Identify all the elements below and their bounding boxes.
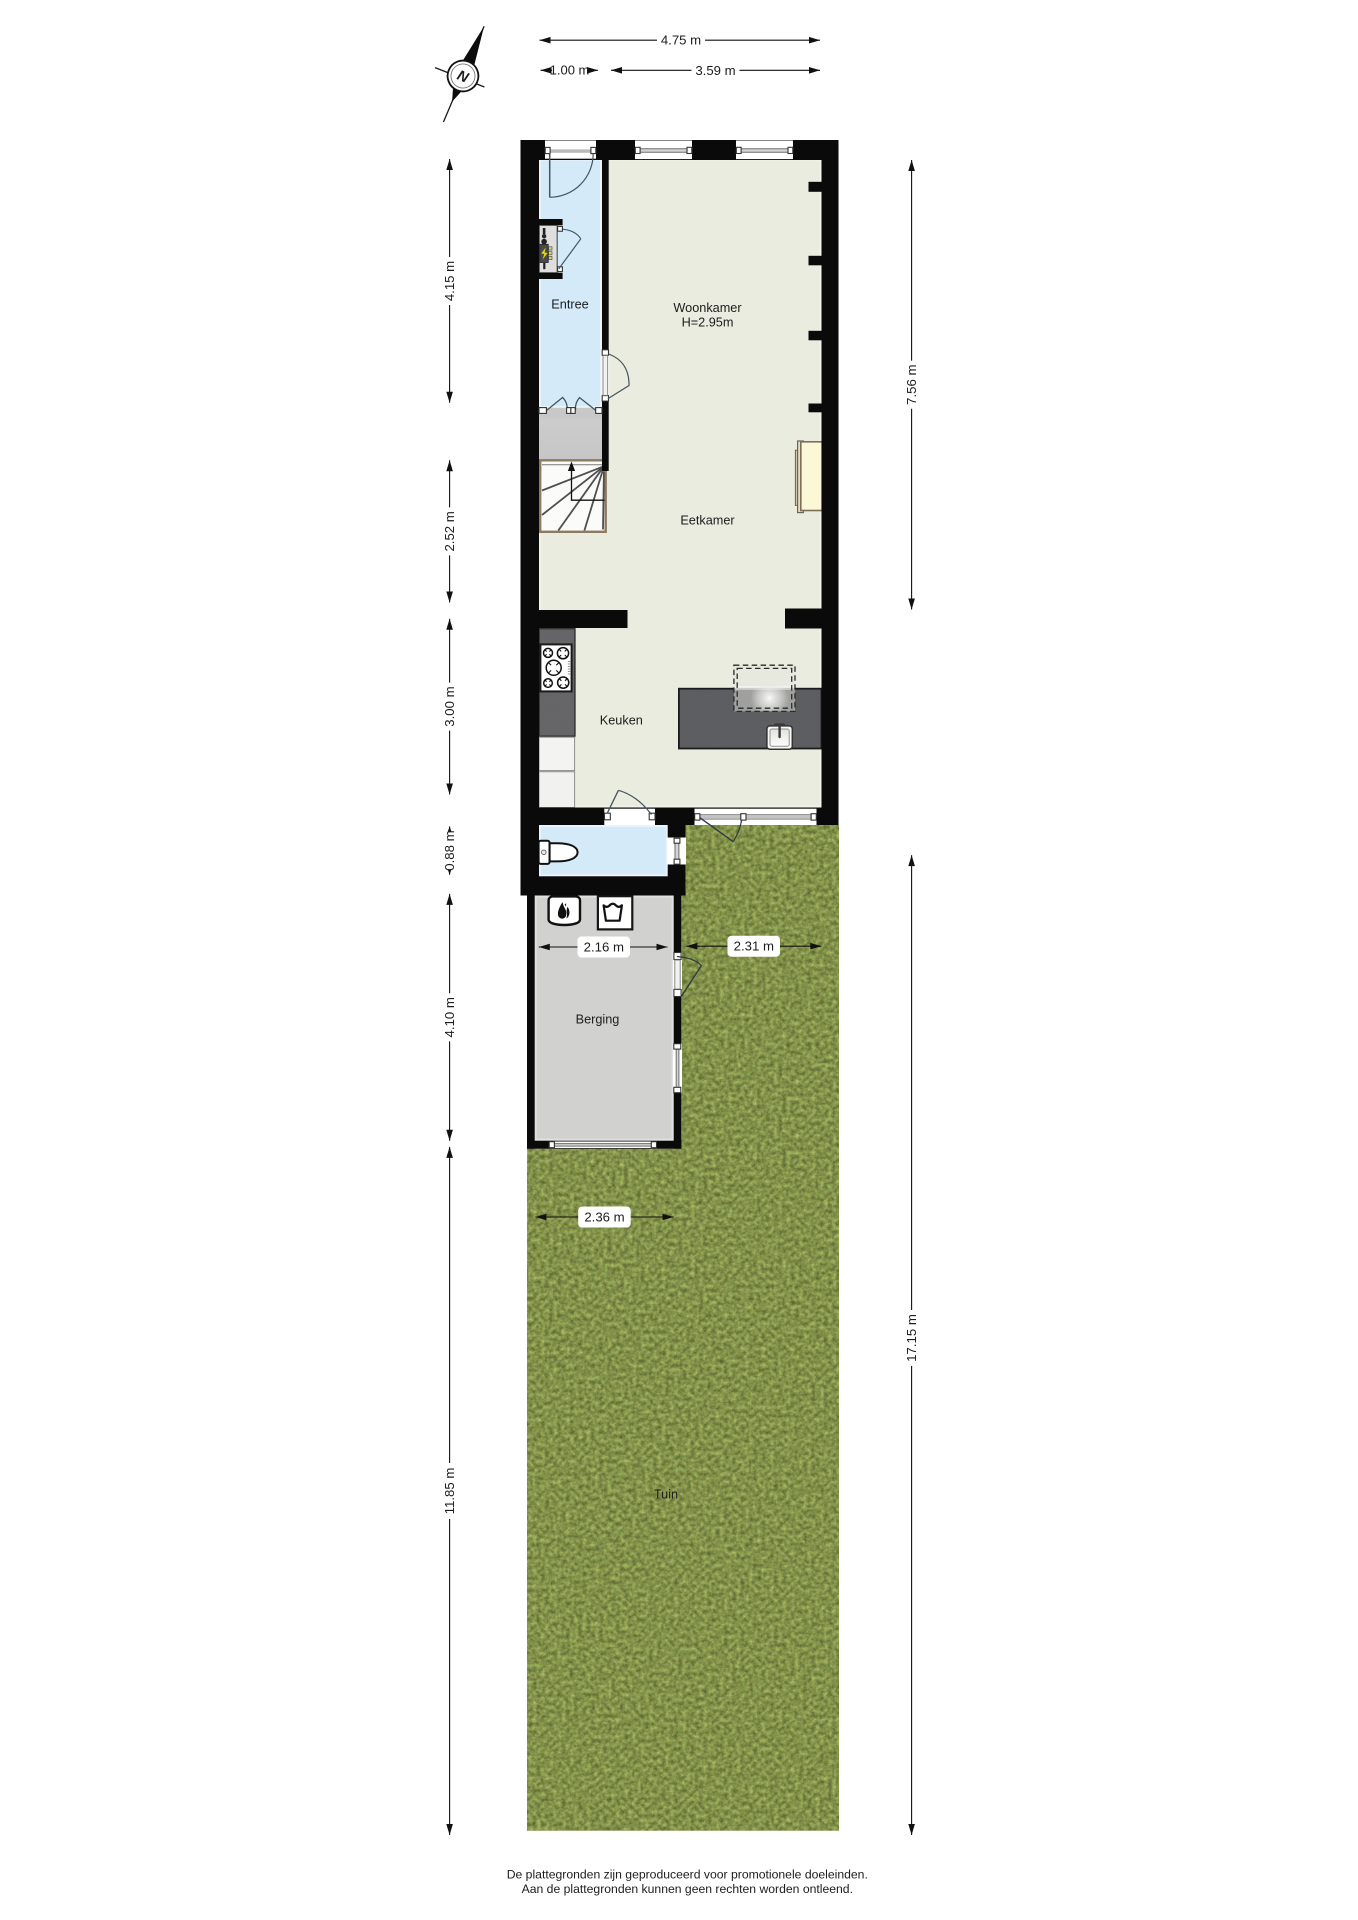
svg-text:7.56 m: 7.56 m (904, 365, 919, 405)
svg-text:Keuken: Keuken (600, 714, 643, 728)
svg-text:H=2.95m: H=2.95m (682, 315, 734, 329)
svg-text:Aan de plattegronden kunnen ge: Aan de plattegronden kunnen geen rechten… (522, 1882, 853, 1896)
svg-text:2.16 m: 2.16 m (584, 940, 624, 955)
svg-text:Berging: Berging (576, 1012, 620, 1026)
svg-text:4.15 m: 4.15 m (442, 261, 457, 301)
svg-text:11.85 m: 11.85 m (442, 1468, 457, 1515)
svg-text:Entree: Entree (551, 297, 588, 311)
svg-text:3.00 m: 3.00 m (442, 686, 457, 726)
svg-text:17.15 m: 17.15 m (904, 1314, 919, 1362)
svg-text:3.59 m: 3.59 m (695, 63, 735, 78)
svg-text:De plattegronden zijn geproduc: De plattegronden zijn geproduceerd voor … (507, 1868, 868, 1882)
svg-text:2.36 m: 2.36 m (584, 1210, 624, 1225)
svg-text:4.10 m: 4.10 m (442, 997, 457, 1037)
svg-text:2.31 m: 2.31 m (734, 939, 774, 954)
svg-text:Tuin: Tuin (654, 1488, 678, 1502)
svg-text:1.00 m: 1.00 m (550, 63, 590, 78)
svg-text:0.88 m: 0.88 m (442, 830, 457, 870)
svg-text:2.52 m: 2.52 m (442, 511, 457, 551)
svg-text:4.75 m: 4.75 m (661, 33, 701, 48)
svg-text:Woonkamer: Woonkamer (673, 301, 742, 315)
svg-text:Eetkamer: Eetkamer (680, 514, 735, 528)
